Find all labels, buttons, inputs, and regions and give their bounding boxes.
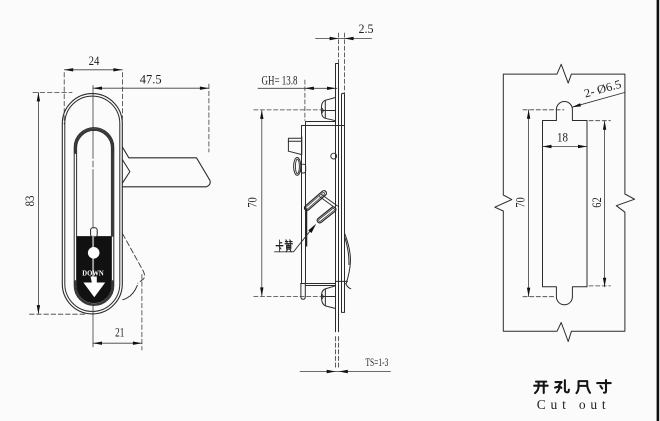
svg-text:GH= 13.8: GH= 13.8	[262, 73, 298, 87]
svg-text:2.5: 2.5	[359, 21, 374, 36]
svg-text:47.5: 47.5	[140, 72, 162, 87]
svg-text:24: 24	[89, 53, 100, 68]
svg-text:DOWN: DOWN	[82, 268, 104, 277]
svg-text:TS=1-3: TS=1-3	[366, 355, 389, 369]
svg-text:70: 70	[244, 197, 259, 208]
svg-text:21: 21	[115, 324, 124, 339]
svg-text:83: 83	[22, 196, 37, 207]
svg-text:70: 70	[513, 197, 528, 208]
svg-text:18: 18	[557, 129, 568, 144]
svg-text:62: 62	[589, 197, 604, 208]
